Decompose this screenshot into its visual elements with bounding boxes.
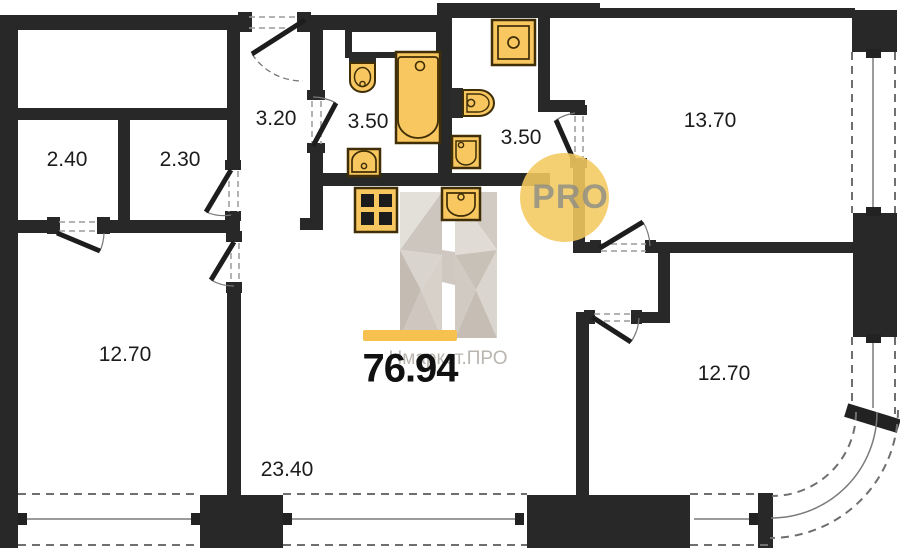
sink-small-icon (452, 136, 480, 168)
logo-accent-bar (363, 330, 457, 341)
bathtub-icon (396, 52, 440, 143)
vent-shaft (352, 32, 436, 52)
sink-icon (348, 149, 380, 176)
kitchen-sink-icon (442, 188, 480, 220)
washing-machine-icon (492, 20, 535, 65)
storage-left-door (47, 217, 110, 251)
room-area-label-bedroom-bottom-right: 12.70 (698, 362, 751, 386)
storage-right-door (206, 160, 241, 221)
floorplan: PRO Нмаркет.ПРО 2.40 2.30 3.20 3.50 3.50… (0, 0, 900, 548)
window-bottom-kitchen (283, 494, 527, 545)
pro-watermark-badge: PRO (520, 153, 609, 242)
bedroom-left-door (211, 231, 242, 293)
toilet-icon (349, 52, 376, 92)
bathroom-left-door (307, 90, 336, 153)
window-bottom-left (18, 494, 200, 545)
room-area-label-bathroom-left: 3.50 (348, 110, 389, 134)
room-area-label-storage-left: 2.40 (47, 148, 88, 172)
entrance-door (238, 12, 311, 81)
window-right-upper (852, 49, 895, 216)
window-right-lower (844, 334, 900, 433)
window-curved-corner (770, 410, 898, 538)
room-area-label-kitchen-living: 23.40 (261, 458, 314, 482)
bedroom-bottom-right-door (584, 310, 642, 342)
pro-watermark-text: PRO (532, 178, 609, 217)
room-area-label-bathroom-right: 3.50 (501, 126, 542, 150)
floorplan-drawing (0, 0, 900, 548)
stove-icon (355, 188, 397, 232)
bedroom-top-right-south-door (590, 222, 656, 253)
room-area-label-bedroom-left: 12.70 (99, 343, 152, 367)
room-area-label-bedroom-top-right: 13.70 (684, 109, 737, 133)
room-area-label-storage-right: 2.30 (160, 148, 201, 172)
wall-toilet-icon (450, 88, 494, 118)
room-area-label-hallway: 3.20 (256, 107, 297, 131)
total-area-label: 76.94 (362, 347, 457, 392)
